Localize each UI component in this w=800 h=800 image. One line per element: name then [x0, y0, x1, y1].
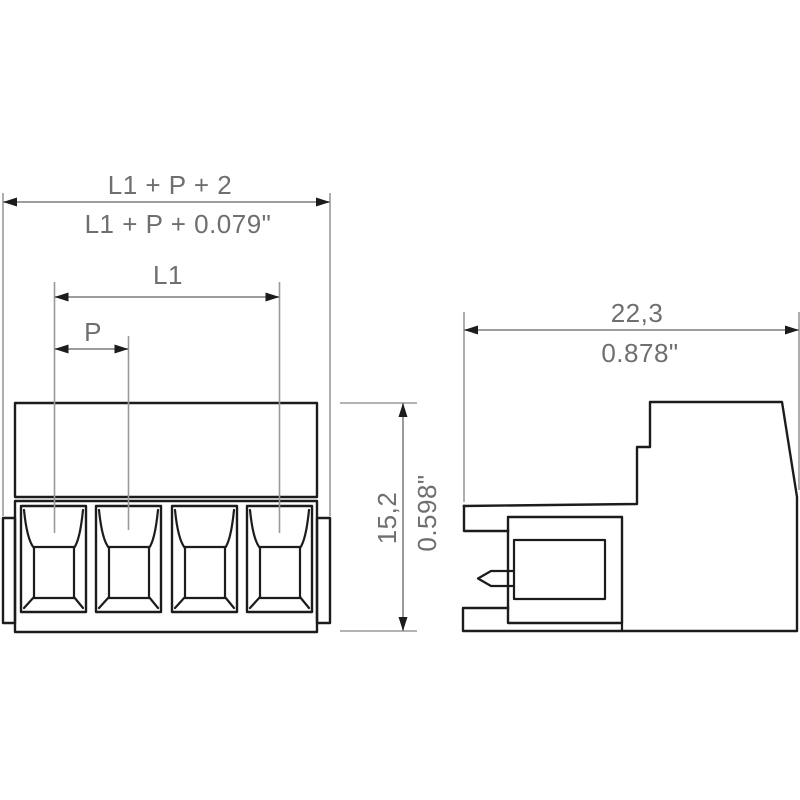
arrowhead-right: [266, 293, 280, 302]
arrowhead-right: [316, 198, 330, 207]
front-left-tab: [3, 518, 15, 623]
hole-inner: [109, 547, 149, 598]
dim-l1-label: L1: [153, 260, 183, 290]
dim-overall-metric-label: L1 + P + 2: [108, 170, 233, 200]
hole-inner: [185, 547, 225, 598]
dim-side-width-metric-label: 22,3: [611, 298, 664, 328]
front-right-tab: [317, 518, 330, 623]
dim-height: 15,2 0.598": [340, 403, 442, 631]
dim-overall-imperial-label: L1 + P + 0.079": [85, 209, 272, 239]
dim-height-imperial-label: 0.598": [412, 474, 442, 551]
arrowhead-bottom: [399, 617, 408, 631]
arrowhead-left: [55, 345, 69, 354]
side-upper-flange: [464, 506, 508, 531]
wire-hole-3: [172, 506, 237, 612]
hole-outer: [21, 506, 86, 612]
dim-pitch-label: P: [84, 317, 102, 347]
dim-side-width: 22,3 0.878": [464, 298, 799, 502]
wire-hole-1: [21, 506, 86, 612]
arrowhead-left: [3, 198, 17, 207]
hole-outer: [172, 506, 237, 612]
technical-drawing-page: L1 + P + 2 L1 + P + 0.079" L1 P 15,2 0: [0, 0, 800, 800]
extension-lines: [3, 193, 330, 516]
arrowhead-top: [399, 403, 408, 417]
front-view: [3, 403, 330, 632]
arrowhead-right: [785, 326, 799, 335]
terminal-block-drawing: L1 + P + 2 L1 + P + 0.079" L1 P 15,2 0: [0, 0, 800, 800]
arrowhead-left: [464, 326, 478, 335]
side-view: [463, 402, 797, 631]
dim-side-width-imperial-label: 0.878": [601, 338, 678, 368]
arrowhead-left: [55, 293, 69, 302]
dim-overall-width: L1 + P + 2 L1 + P + 0.079": [3, 170, 330, 516]
front-upper-housing: [15, 403, 317, 497]
arrowhead-right: [115, 345, 129, 354]
side-plug-frame-inner: [514, 540, 605, 599]
dim-height-metric-label: 15,2: [372, 492, 402, 545]
hole-inner: [34, 547, 74, 598]
dim-l1: L1: [55, 260, 280, 533]
hole-inner: [260, 547, 300, 598]
